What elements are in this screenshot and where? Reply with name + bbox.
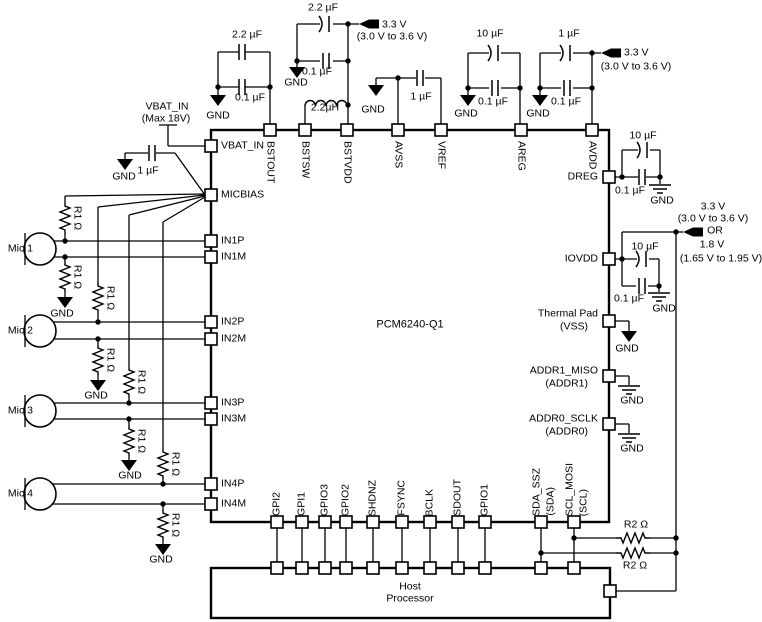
pin-label-bstvdd: BSTVDD bbox=[342, 141, 353, 184]
pin-shdnz bbox=[367, 516, 379, 528]
r2-label-scl: R2 Ω bbox=[624, 520, 648, 531]
cap-value-areg-01uf: 0.1 µF bbox=[478, 97, 508, 108]
pin-label-vss: (VSS) bbox=[560, 322, 588, 333]
cap-value-dreg-01uf: 0.1 µF bbox=[615, 186, 645, 197]
r1-label-bias3: R1 Ω bbox=[136, 370, 147, 394]
pin-label-vref: VREF bbox=[436, 141, 447, 169]
pin-label-thermal-pad: Thermal Pad bbox=[538, 309, 598, 320]
pin-label-sdout: SDOUT bbox=[453, 479, 464, 516]
pin-in2p bbox=[205, 316, 217, 328]
pin-label-gpio3: GPIO3 bbox=[320, 484, 331, 516]
pin-sdout bbox=[452, 516, 464, 528]
pin-label-dreg: DREG bbox=[568, 172, 598, 183]
gnd-label-thermal: GND bbox=[615, 344, 638, 355]
cap-value-bstout-01uf: 0.1 µF bbox=[235, 93, 265, 104]
r1-label-bias1: R1 Ω bbox=[72, 206, 83, 230]
pin-label-in3m: IN3M bbox=[221, 414, 246, 425]
pin-label-gpi1: GPI1 bbox=[297, 492, 308, 516]
pin-label-bclk: BCLK bbox=[425, 489, 436, 516]
r1-label-gnd2: R1 Ω bbox=[105, 348, 116, 372]
pin-label-in2p: IN2P bbox=[221, 317, 244, 328]
host-label-line2: Processor bbox=[386, 594, 433, 605]
gnd-label-mic2: GND bbox=[84, 391, 107, 402]
gnd-label-dreg: GND bbox=[650, 196, 673, 207]
gnd-label-iovdd: GND bbox=[652, 304, 675, 315]
pin-gpi2 bbox=[271, 516, 283, 528]
supply-33v-range-avdd: (3.0 V to 3.6 V) bbox=[601, 62, 672, 73]
pin-label-addr1: (ADDR1) bbox=[545, 379, 588, 390]
cap-value-vref-1uf: 1 µF bbox=[410, 92, 431, 103]
cap-value-areg-10uf: 10 µF bbox=[476, 29, 503, 40]
pin-label-fsync: FSYNC bbox=[397, 480, 408, 516]
pin-in3p bbox=[205, 397, 217, 409]
host-pin-gpi1 bbox=[296, 562, 308, 574]
pin-addr0-sclk bbox=[603, 418, 615, 430]
mic4-label: Mic 4 bbox=[8, 489, 33, 500]
pin-label-vbat-in: VBAT_IN bbox=[221, 141, 264, 152]
pin-label-addr0-sclk: ADDR0_SCLK bbox=[529, 414, 598, 425]
pin-label-gpio2: GPIO2 bbox=[341, 484, 352, 516]
pin-label-scl-mosi: SCL_MOSI bbox=[565, 463, 576, 516]
pin-label-addr0: (ADDR0) bbox=[545, 427, 588, 438]
pin-gpio2 bbox=[340, 516, 352, 528]
pin-in4m bbox=[205, 498, 217, 510]
pin-label-in1m: IN1M bbox=[221, 252, 246, 263]
pin-sda-ssz bbox=[535, 516, 547, 528]
host-pin-gpio1 bbox=[479, 562, 491, 574]
vbat-net-label: VBAT_IN bbox=[146, 102, 189, 113]
host-pin-supply bbox=[604, 585, 616, 597]
mic1-label: Mic 1 bbox=[8, 244, 33, 255]
host-pin-bclk bbox=[424, 562, 436, 574]
cap-value-avdd-01uf: 0.1 µF bbox=[551, 97, 581, 108]
mic3-label: Mic 3 bbox=[8, 406, 33, 417]
host-pin-gpio2 bbox=[340, 562, 352, 574]
pin-label-shdnz: SHDNZ bbox=[368, 480, 379, 516]
cap-value-avdd-1uf: 1 µF bbox=[558, 29, 579, 40]
pin-bstvdd bbox=[341, 124, 353, 136]
cap-value-dreg-10uf: 10 µF bbox=[629, 131, 656, 142]
pin-vref bbox=[435, 124, 447, 136]
pin-iovdd bbox=[603, 253, 615, 265]
gnd-label-avss: GND bbox=[361, 105, 384, 116]
gnd-label-mic3: GND bbox=[118, 471, 141, 482]
pin-scl-mosi bbox=[568, 516, 580, 528]
vbat-max-label: (Max 18V) bbox=[142, 114, 190, 125]
pin-gpi1 bbox=[296, 516, 308, 528]
gnd-label-avdd: GND bbox=[526, 109, 549, 120]
pin-label-avdd: AVDD bbox=[587, 141, 598, 169]
gnd-label-mic4: GND bbox=[149, 555, 172, 566]
gnd-label-bstvdd: GND bbox=[284, 78, 307, 89]
r1-label-gnd4: R1 Ω bbox=[170, 513, 181, 537]
pin-label-in2m: IN2M bbox=[221, 334, 246, 345]
host-pin-gpi2 bbox=[271, 562, 283, 574]
pin-label-areg: AREG bbox=[516, 141, 527, 171]
gnd-label-mic1: GND bbox=[50, 309, 73, 320]
pin-gpio1 bbox=[479, 516, 491, 528]
pin-micbias bbox=[205, 189, 217, 201]
schematic-canvas: PCM6240-Q1 Host Processor BSTOUT BSTSW B… bbox=[0, 0, 762, 622]
cap-value-bstout-22uf: 2.2 µF bbox=[232, 30, 262, 41]
r2-label-sda: R2 Ω bbox=[623, 561, 647, 572]
supply-flag-avdd bbox=[601, 49, 621, 58]
pin-avdd bbox=[586, 124, 598, 136]
pin-label-micbias: MICBIAS bbox=[221, 190, 264, 201]
host-pin-shdnz bbox=[367, 562, 379, 574]
supply-or: OR bbox=[707, 226, 723, 237]
pin-label-addr1-miso: ADDR1_MISO bbox=[530, 366, 598, 377]
pin-label-gpi2: GPI2 bbox=[272, 492, 283, 516]
r1-label-gnd1: R1 Ω bbox=[72, 265, 83, 289]
gnd-label-micbias: GND bbox=[112, 172, 135, 183]
pin-thermal-pad bbox=[603, 315, 615, 327]
pin-in2m bbox=[205, 333, 217, 345]
pin-label-sda-ssz: SDA_SSZ bbox=[532, 468, 543, 516]
pin-in1p bbox=[205, 235, 217, 247]
pin-bstsw bbox=[299, 124, 311, 136]
pin-in4p bbox=[205, 478, 217, 490]
pin-label-scl: (SCL) bbox=[579, 489, 590, 516]
host-pin-gpio3 bbox=[319, 562, 331, 574]
host-pin-sda bbox=[535, 562, 547, 574]
mic2-label: Mic 2 bbox=[8, 326, 33, 337]
pin-bstout bbox=[264, 124, 276, 136]
supply-33v-range-iovdd: (3.0 V to 3.6 V) bbox=[678, 214, 749, 225]
pin-in1m bbox=[205, 251, 217, 263]
pin-label-in4m: IN4M bbox=[221, 499, 246, 510]
pin-label-avss: AVSS bbox=[393, 141, 404, 168]
gnd-label-areg: GND bbox=[454, 109, 477, 120]
pin-addr1-miso bbox=[603, 370, 615, 382]
pin-fsync bbox=[396, 516, 408, 528]
pin-in3m bbox=[205, 413, 217, 425]
supply-33v-avdd: 3.3 V bbox=[624, 48, 649, 59]
supply-33v-iovdd: 3.3 V bbox=[701, 202, 726, 213]
host-pin-fsync bbox=[396, 562, 408, 574]
supply-18v-range-iovdd: (1.65 V to 1.95 V) bbox=[680, 254, 762, 265]
cap-value-iovdd-10uf: 10 µF bbox=[631, 242, 658, 253]
pin-dreg bbox=[603, 171, 615, 183]
pin-vbat-in bbox=[205, 140, 217, 152]
r1-label-bias2: R1 Ω bbox=[105, 286, 116, 310]
supply-18v-iovdd: 1.8 V bbox=[700, 240, 725, 251]
pin-label-sda: (SDA) bbox=[546, 487, 557, 516]
chip-name: PCM6240-Q1 bbox=[376, 320, 443, 331]
gnd-label-bstout: GND bbox=[206, 111, 229, 122]
pin-label-in4p: IN4P bbox=[221, 479, 244, 490]
r1-label-gnd3: R1 Ω bbox=[136, 429, 147, 453]
pin-avss bbox=[392, 124, 404, 136]
cap-value-bstvdd-22uf: 2.2 µF bbox=[308, 3, 338, 14]
host-pin-scl bbox=[568, 562, 580, 574]
cap-value-iovdd-01uf: 0.1 µF bbox=[614, 294, 644, 305]
pin-bclk bbox=[424, 516, 436, 528]
supply-flag-bstvdd bbox=[359, 20, 379, 29]
pin-label-gpio1: GPIO1 bbox=[480, 484, 491, 516]
cap-value-micbias-1uf: 1 µF bbox=[137, 166, 158, 177]
host-pin-sdout bbox=[452, 562, 464, 574]
pin-areg bbox=[515, 124, 527, 136]
pin-label-bstout: BSTOUT bbox=[265, 141, 276, 183]
pin-label-iovdd: IOVDD bbox=[565, 254, 598, 265]
r1-label-bias4: R1 Ω bbox=[170, 452, 181, 476]
pin-label-in3p: IN3P bbox=[221, 398, 244, 409]
mic-symbols bbox=[24, 233, 56, 510]
inductor-value: 2.2µH bbox=[311, 103, 339, 114]
supply-flag-iovdd bbox=[683, 228, 703, 237]
pin-label-bstsw: BSTSW bbox=[300, 141, 311, 178]
host-label-line1: Host bbox=[399, 582, 421, 593]
pin-gpio3 bbox=[319, 516, 331, 528]
pin-label-in1p: IN1P bbox=[221, 236, 244, 247]
gnd-label-addr1: GND bbox=[620, 396, 643, 407]
supply-33v-bstvdd: 3.3 V bbox=[382, 20, 407, 31]
gnd-label-addr0: GND bbox=[620, 444, 643, 455]
supply-33v-range-bstvdd: (3.0 V to 3.6 V) bbox=[357, 32, 428, 43]
